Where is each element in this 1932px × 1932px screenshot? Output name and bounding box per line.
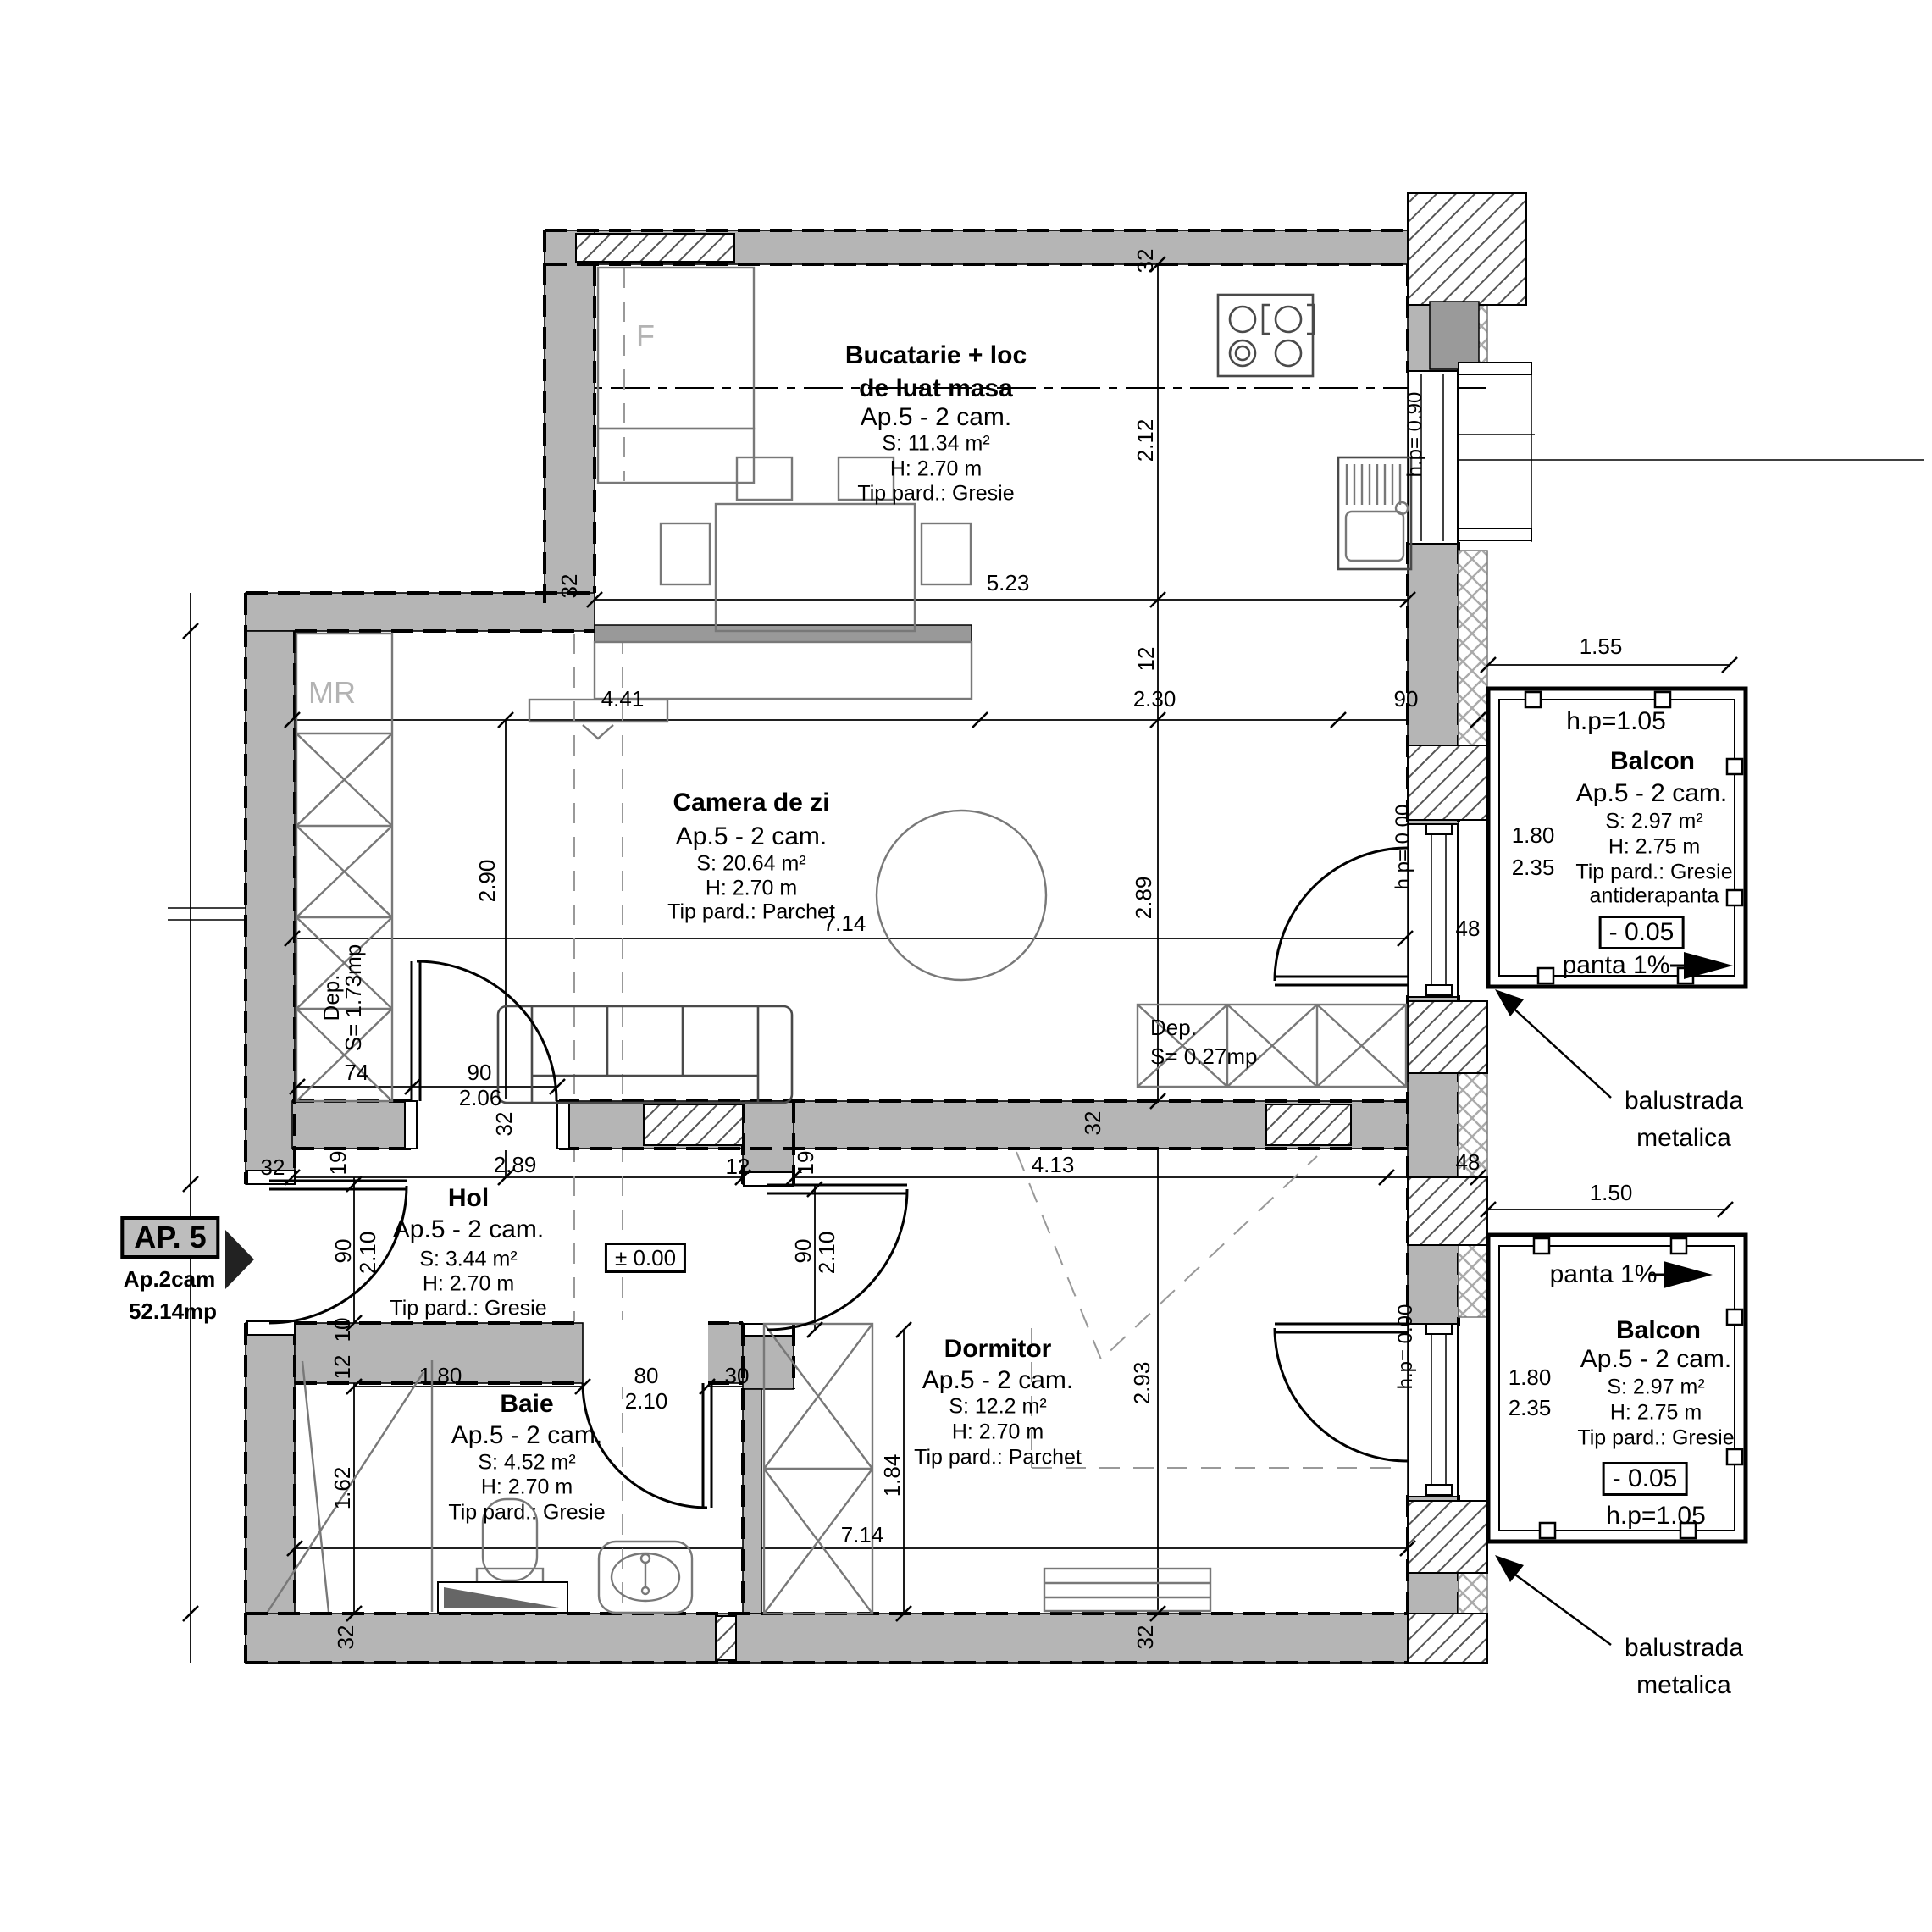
room-floor-baie: Tip pard.: Gresie — [448, 1503, 605, 1524]
dim-30: 30 — [725, 1365, 750, 1387]
storage-dep1-line1: Dep. — [320, 944, 342, 1051]
bedroom-bench — [1044, 1569, 1210, 1611]
room-floor-camera: Tip pard.: Parchet — [667, 902, 835, 923]
panta-label-bottom: panta 1% — [1550, 1262, 1658, 1287]
room-title-bucatarie-line1: Bucatarie + loc — [845, 343, 1027, 368]
dim-12-kitchen: 12 — [1135, 647, 1157, 672]
room-height-hol: H: 2.70 m — [423, 1274, 514, 1295]
dim-74: 74 — [345, 1061, 369, 1083]
balcony-top-parapet: h.p=1.05 — [1566, 709, 1666, 734]
room-title-bucatarie-line2: de luat masa — [859, 376, 1013, 401]
room-floor-dormitor: Tip pard.: Parchet — [914, 1448, 1082, 1469]
insulation-strip — [1459, 264, 1487, 1663]
level-marker-balcon-bottom: - 0.05 — [1603, 1462, 1688, 1496]
dim-184: 1.84 — [881, 1454, 903, 1497]
washing-machine — [438, 1582, 567, 1613]
dim-155: 1.55 — [1580, 635, 1623, 657]
room-apt-bucatarie: Ap.5 - 2 cam. — [861, 405, 1011, 430]
dim-212: 2.12 — [1134, 419, 1156, 462]
dim-235-door-bottom: 2.35 — [1509, 1397, 1552, 1419]
kitchen-counter — [595, 625, 972, 699]
sofa — [498, 1006, 792, 1103]
door-balcony-bottom — [1275, 1324, 1408, 1461]
balustrada-leader-top — [1495, 989, 1611, 1098]
dim-10: 10 — [331, 1318, 353, 1342]
dim-210-entrance: 2.10 — [357, 1232, 379, 1275]
door-balcony-top — [1275, 848, 1408, 985]
fridge — [598, 268, 754, 483]
note-balustrada-top-1: balustrada — [1625, 1088, 1743, 1114]
dim-90-top: 90 — [1394, 688, 1419, 710]
dim-289-living: 2.89 — [1132, 877, 1154, 920]
kitchen-sink — [1338, 457, 1411, 569]
dim-210-bedroomdoor: 2.10 — [816, 1232, 838, 1275]
dim-290: 2.90 — [476, 860, 498, 903]
room-height-baie: H: 2.70 m — [481, 1477, 573, 1498]
storage-dep1-label: Dep. S= 1.73mp — [320, 944, 364, 1051]
dim-293: 2.93 — [1131, 1362, 1153, 1405]
room-apt-balcon-top: Ap.5 - 2 cam. — [1576, 781, 1727, 806]
room-floor-balcon-bottom: Tip pard.: Gresie — [1577, 1428, 1734, 1449]
note-balustrada-bottom-2: metalica — [1636, 1673, 1731, 1698]
dim-32-bottomwall-right: 32 — [1134, 1625, 1156, 1650]
floor-plan-page: Bucatarie + loc de luat masa Ap.5 - 2 ca… — [0, 0, 1932, 1932]
storage-dep2-line2: S= 0.27mp — [1150, 1045, 1257, 1067]
wall-edges — [246, 230, 1459, 1663]
dim-80: 80 — [634, 1365, 659, 1387]
dim-19-bedroom: 19 — [794, 1151, 817, 1176]
room-area-balcon-top: S: 2.97 m² — [1605, 811, 1702, 833]
balustrada-leader-bottom — [1495, 1555, 1611, 1645]
dim-90-mid: 90 — [468, 1061, 492, 1083]
room-floor-balcon-top: Tip pard.: Gresie — [1575, 862, 1732, 883]
dim-162: 1.62 — [331, 1467, 353, 1510]
room-title-baie: Baie — [500, 1392, 553, 1417]
room-area-baie: S: 4.52 m² — [478, 1453, 575, 1474]
dim-206: 2.06 — [459, 1087, 502, 1109]
dim-210-baie: 2.10 — [625, 1390, 668, 1412]
dim-180-door-top: 1.80 — [1512, 824, 1555, 846]
dim-32-bottomwall-left: 32 — [335, 1625, 357, 1650]
room-title-balcon-top: Balcon — [1610, 749, 1695, 774]
dim-32-topwall: 32 — [1134, 249, 1156, 274]
room-height-dormitor: H: 2.70 m — [952, 1422, 1044, 1443]
room-floor2-balcon-top: antiderapanta — [1590, 886, 1719, 907]
dim-180-door-bottom: 1.80 — [1509, 1366, 1552, 1388]
room-apt-baie: Ap.5 - 2 cam. — [451, 1423, 602, 1448]
dim-32-leftwall: 32 — [261, 1156, 285, 1178]
dim-48-bottom: 48 — [1456, 1151, 1481, 1173]
dim-32-midwall: 32 — [1082, 1111, 1104, 1136]
dim-32-middoor: 32 — [493, 1112, 515, 1137]
dim-714-living: 7.14 — [823, 912, 866, 934]
room-height-balcon-bottom: H: 2.75 m — [1610, 1403, 1702, 1424]
dim-289-hol: 2.89 — [494, 1154, 537, 1176]
room-height-balcon-top: H: 2.75 m — [1608, 837, 1700, 858]
walls — [246, 230, 1459, 1663]
dim-90-entrance: 90 — [332, 1239, 354, 1264]
room-area-hol: S: 3.44 m² — [419, 1249, 517, 1270]
parapet-balcony-door-top: h.p= 0.00 — [1393, 805, 1414, 890]
room-apt-camera: Ap.5 - 2 cam. — [676, 824, 827, 850]
room-height-camera: H: 2.70 m — [706, 878, 797, 900]
round-table — [877, 811, 1046, 980]
room-area-dormitor: S: 12.2 m² — [949, 1397, 1046, 1418]
dim-32-kitchenwall: 32 — [558, 574, 580, 599]
dim-441: 4.41 — [601, 688, 645, 710]
bathroom-sink — [599, 1542, 692, 1613]
dim-12-baie: 12 — [331, 1355, 353, 1380]
room-title-dormitor: Dormitor — [944, 1337, 1052, 1362]
hatched-columns — [576, 193, 1526, 1663]
apartment-type: Ap.2cam — [124, 1268, 215, 1290]
parapet-balcony-door-bottom: h.p= 0.00 — [1396, 1304, 1416, 1390]
dim-523: 5.23 — [987, 572, 1030, 594]
room-floor-bucatarie: Tip pard.: Gresie — [857, 484, 1014, 505]
note-balustrada-top-2: metalica — [1636, 1126, 1731, 1151]
room-title-hol: Hol — [448, 1186, 489, 1211]
apartment-area: 52.14mp — [129, 1300, 217, 1322]
room-apt-hol: Ap.5 - 2 cam. — [393, 1217, 544, 1243]
room-area-camera: S: 20.64 m² — [696, 854, 805, 875]
dim-413: 4.13 — [1032, 1154, 1075, 1176]
dim-19-hol: 19 — [327, 1151, 349, 1176]
dim-230: 2.30 — [1133, 688, 1176, 710]
room-title-camera: Camera de zi — [673, 790, 829, 816]
room-height-bucatarie: H: 2.70 m — [890, 459, 982, 480]
room-title-balcon-bottom: Balcon — [1616, 1318, 1701, 1343]
dim-714-bedroom: 7.14 — [841, 1524, 884, 1546]
room-floor-hol: Tip pard.: Gresie — [390, 1298, 546, 1320]
storage-dep1-line2: S= 1.73mp — [342, 944, 364, 1051]
note-mr: MR — [308, 678, 356, 708]
tv-cabinet — [529, 700, 667, 739]
level-marker-balcon-top: - 0.05 — [1599, 916, 1685, 949]
parapet-kitchen-window: h.p= 0.90 — [1405, 392, 1425, 478]
dim-150: 1.50 — [1590, 1182, 1633, 1204]
dim-90-bedroomdoor: 90 — [792, 1239, 814, 1264]
note-balustrada-bottom-1: balustrada — [1625, 1636, 1743, 1661]
apartment-marker: AP. 5 — [120, 1216, 219, 1259]
room-area-bucatarie: S: 11.34 m² — [882, 434, 989, 455]
note-f: F — [636, 321, 655, 352]
room-apt-dormitor: Ap.5 - 2 cam. — [922, 1368, 1073, 1393]
stove — [1218, 295, 1314, 376]
balcony-bottom-parapet: h.p=1.05 — [1606, 1503, 1706, 1529]
dim-12-hol: 12 — [726, 1155, 750, 1177]
dim-180-baie: 1.80 — [419, 1365, 462, 1387]
panta-label-top: panta 1% — [1563, 953, 1670, 978]
level-marker-hol: ± 0.00 — [605, 1243, 686, 1273]
dim-48-top: 48 — [1456, 917, 1481, 939]
storage-dep2-line1: Dep. — [1150, 1016, 1197, 1038]
room-apt-balcon-bottom: Ap.5 - 2 cam. — [1580, 1347, 1731, 1372]
dim-235-door-top: 2.35 — [1512, 856, 1555, 878]
room-area-balcon-bottom: S: 2.97 m² — [1607, 1377, 1704, 1398]
